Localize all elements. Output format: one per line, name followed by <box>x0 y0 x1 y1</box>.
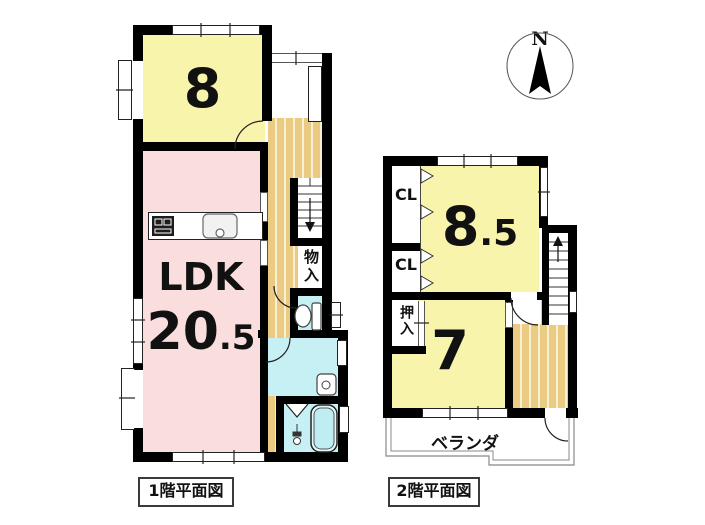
entry-window <box>272 53 322 63</box>
toilet-floor <box>298 296 322 330</box>
closet2-label: CL <box>392 255 420 274</box>
compass-north-label: N <box>524 28 556 50</box>
ldk-label: LDK <box>138 258 264 296</box>
wall <box>536 292 544 300</box>
ldk-size-int: 20 <box>147 302 219 362</box>
wall <box>276 396 338 404</box>
closet1-label: CL <box>392 185 420 204</box>
window <box>172 452 265 462</box>
wall <box>542 233 549 325</box>
window <box>540 167 548 217</box>
window <box>337 340 347 366</box>
room85-int: 8 <box>442 195 480 258</box>
window <box>339 406 349 433</box>
wall <box>568 225 577 418</box>
washroom-floor <box>266 338 338 396</box>
closet1-floor <box>392 166 420 243</box>
bathroom-floor <box>284 404 338 452</box>
compass-needle-icon <box>529 46 551 94</box>
storage-label: 物入 <box>301 249 322 285</box>
window <box>331 302 341 328</box>
wall <box>290 296 298 330</box>
door-opening <box>511 292 537 300</box>
door-arc-veranda <box>545 418 568 441</box>
wall <box>513 408 545 418</box>
ldk-floor <box>140 148 262 454</box>
wall <box>290 238 332 246</box>
wall <box>383 243 420 251</box>
bay-window <box>118 60 132 120</box>
oshiire-label: 押入 <box>396 305 416 337</box>
wall <box>420 292 513 300</box>
kitchen-counter <box>148 212 263 240</box>
floor1-caption: 1階平面図 <box>138 477 234 507</box>
floor2-caption: 2階平面図 <box>388 477 480 507</box>
window <box>172 25 260 35</box>
window <box>437 156 518 166</box>
room8-size-label: 8 <box>140 62 265 116</box>
stairs-2f-floor <box>549 233 568 325</box>
hallway-1f-floor-strip <box>268 396 276 452</box>
doorswing-area <box>513 298 541 324</box>
window <box>422 408 508 418</box>
plan-overlay <box>0 0 705 525</box>
wall <box>133 142 262 151</box>
ldk-size-frac: .5 <box>219 318 256 358</box>
window-gap <box>133 370 143 428</box>
front-door <box>308 66 322 122</box>
wall <box>290 178 298 240</box>
veranda-label: ベランダ <box>405 429 525 454</box>
stairs-1f-floor <box>298 178 322 238</box>
wall <box>260 142 268 457</box>
wall <box>383 156 392 418</box>
wall <box>276 396 284 452</box>
wall <box>290 288 332 296</box>
room85-frac: .5 <box>479 213 518 254</box>
room85-size-label: 8.5 <box>420 200 540 254</box>
floorplan-page: 8 LDK 20.5 8.5 7 CL CL 物入 押入 ベランダ 1階平面図 … <box>0 0 705 525</box>
ldk-size-label: 20.5 <box>138 306 264 358</box>
window <box>569 291 577 313</box>
